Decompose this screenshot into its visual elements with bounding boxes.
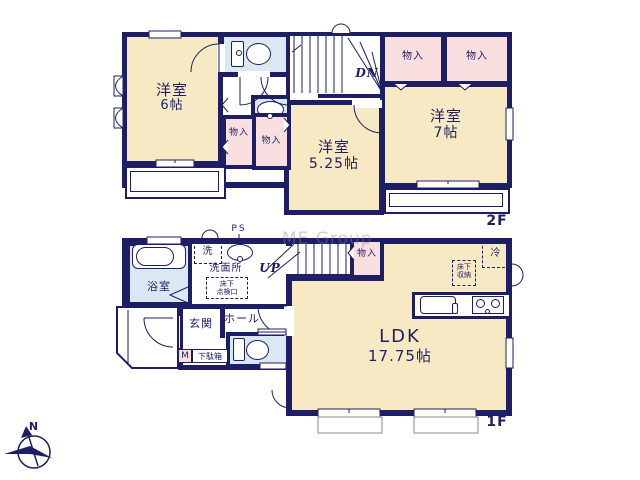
gap-room525-door <box>352 100 382 108</box>
closet-label-2f-ne-2: 物入 <box>442 51 512 63</box>
toilet-bowl-icon-2f <box>246 43 271 65</box>
watermark: ME Group <box>282 229 373 249</box>
underfloor-storage-label: 床下 収納 <box>452 263 476 279</box>
fridge-label: 冷 <box>482 248 510 260</box>
washroom-label: 洗面所 <box>196 263 256 275</box>
closet-label-2f-ne-1: 物入 <box>380 51 446 63</box>
room-label-2f-525: 洋室 5.25帖 <box>284 139 384 172</box>
closet-2f-mid-1 <box>222 115 256 169</box>
toilet-icon-1f <box>233 338 245 361</box>
washer-label: 洗 <box>194 246 222 258</box>
kitchen-sink-icon <box>420 296 456 314</box>
gap-room6-door <box>217 44 225 72</box>
floor-label-2f: 2F <box>482 213 512 229</box>
floor-plan: 洋室 6帖 洋室 5.25帖 洋室 7帖 物入 物入 物入 物入 DN 2F L… <box>0 0 640 480</box>
room-label-2f-6: 洋室 6帖 <box>122 82 222 114</box>
stove-burner-2 <box>491 299 500 308</box>
gap-toilet2f-door <box>238 71 270 79</box>
hall-label: ホール <box>214 313 270 326</box>
bathtub-inner-icon <box>136 247 174 266</box>
closet-label-2f-mid-1: 物入 <box>222 128 256 138</box>
pipe-space-label: PS <box>226 224 252 234</box>
gap-hall-stairs <box>284 246 294 274</box>
underfloor-hatch-label: 床下 点検口 <box>206 280 248 296</box>
basin-icon-1f <box>227 244 253 261</box>
kitchen-faucet-icon <box>452 303 458 314</box>
shoe-box-label: 下駄箱 <box>192 352 228 361</box>
bathroom-label: 浴室 <box>130 281 188 294</box>
closet-label-1f: 物入 <box>350 249 384 259</box>
stairs-dn-label: DN <box>350 67 384 81</box>
room-label-2f-7: 洋室 7帖 <box>380 108 512 141</box>
stairs-2f <box>286 32 384 98</box>
closet-label-2f-mid-2: 物入 <box>252 136 291 146</box>
room-label-ldk: LDK 17.75帖 <box>330 327 470 365</box>
toilet-icon-2f <box>231 41 244 67</box>
gap-hall-ldk <box>284 306 294 336</box>
compass-north-label: N <box>24 421 44 434</box>
meter-label: M <box>178 351 192 361</box>
gap-stairs2f <box>290 92 318 100</box>
balcony-2f-east <box>384 188 510 214</box>
balcony-2f-west <box>125 166 226 199</box>
floor-label-1f: 1F <box>482 414 512 430</box>
stairs-up-label: UP <box>256 262 284 276</box>
toilet-bowl-icon-1f <box>246 340 269 360</box>
stove-burner-1 <box>476 299 485 308</box>
stove-burner-3 <box>485 309 490 314</box>
